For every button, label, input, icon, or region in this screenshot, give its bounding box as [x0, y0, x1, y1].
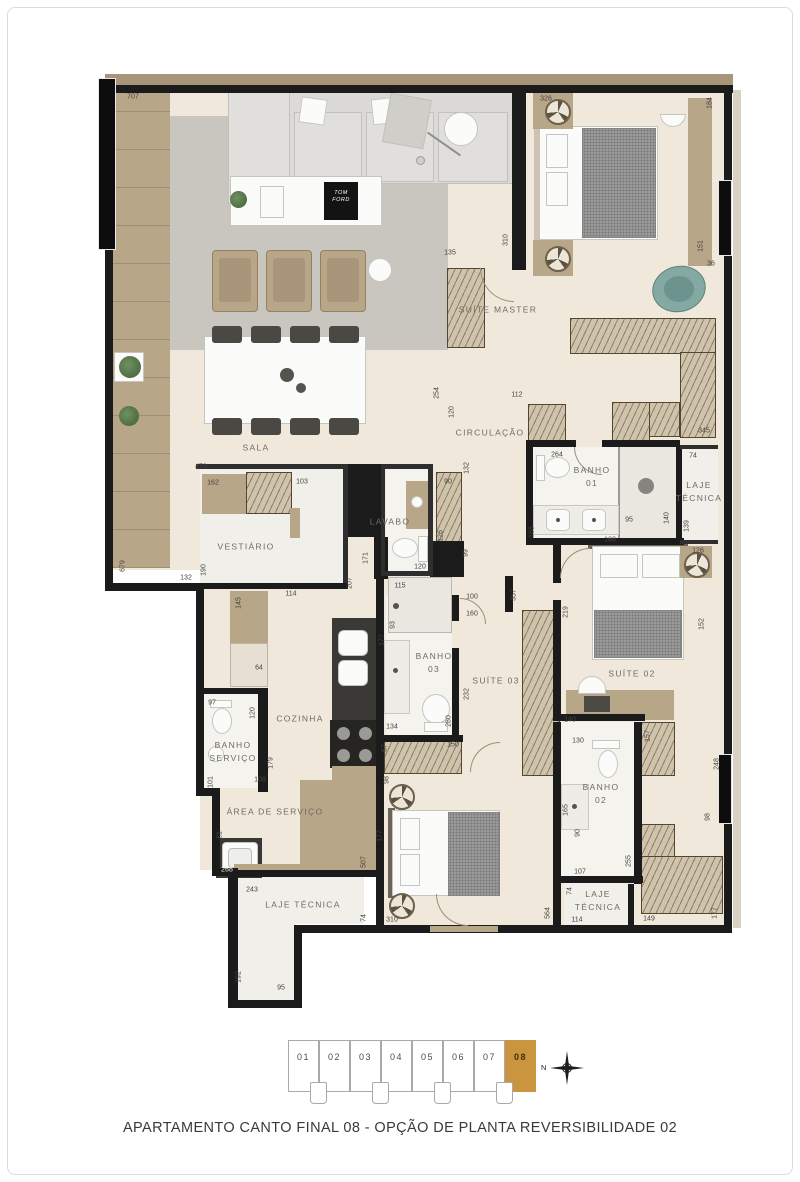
- ceiling-fan-icon: [389, 784, 415, 810]
- wall-segment: [553, 876, 561, 933]
- wall-segment: [428, 464, 433, 576]
- plant: [119, 356, 141, 378]
- room-label: COZINHA: [276, 712, 323, 725]
- kitchen-sink: [338, 660, 368, 686]
- room-label: LAJE TÉCNICA: [676, 479, 722, 505]
- dining-chair: [290, 418, 320, 435]
- room-label: LAJE TÉCNICA: [265, 898, 340, 911]
- dimension-label: 326: [540, 96, 552, 103]
- dimension-label: 115: [394, 583, 405, 590]
- wall-segment: [196, 464, 348, 469]
- dimension-label: 139: [684, 520, 691, 532]
- wall-segment: [381, 571, 433, 576]
- sink-drain: [572, 804, 577, 809]
- dimension-label: 114: [285, 591, 296, 598]
- room-label: BANHO 02: [583, 781, 620, 807]
- bed-pillow: [400, 854, 420, 886]
- bed-blanket: [582, 128, 656, 238]
- armchair-seat: [273, 258, 305, 302]
- dimension-label: 99: [463, 549, 470, 557]
- tray: [260, 186, 284, 218]
- dimension-label: 120: [250, 707, 257, 719]
- closet-return: [290, 508, 300, 538]
- room-label: SALA: [243, 441, 270, 454]
- wall-segment: [526, 440, 576, 447]
- dimension-label: 177: [712, 907, 719, 919]
- dimension-label: 357: [511, 589, 518, 601]
- dimension-label: 95: [277, 985, 285, 992]
- dimension-label: 255: [626, 855, 633, 867]
- room-label: BANHO 01: [574, 464, 611, 490]
- room-label: SUÍTE 03: [472, 674, 519, 687]
- bed-blanket: [594, 610, 682, 658]
- kitchen-sink: [338, 630, 368, 656]
- room-label: BANHO 03: [416, 650, 453, 676]
- dimension-label: 243: [246, 887, 258, 894]
- room-label: SUÍTE MASTER: [459, 303, 537, 316]
- floor-plan-page: TOM FORD: [0, 0, 800, 1182]
- dimension-label: 254: [434, 387, 441, 399]
- closet-hatched: [641, 856, 723, 914]
- keyplan-core: [372, 1082, 389, 1104]
- dimension-label: 95: [625, 517, 633, 524]
- dining-chair: [212, 326, 242, 343]
- ceiling-fan-icon: [545, 99, 571, 125]
- dimension-label: 219: [563, 606, 570, 618]
- wall-segment: [203, 583, 348, 589]
- dimension-label: 107: [574, 869, 586, 876]
- dimension-label: 120: [449, 406, 456, 418]
- dimension-label: 93: [390, 621, 397, 629]
- wall-segment: [228, 1000, 302, 1008]
- dimension-label: 140: [564, 717, 576, 724]
- dimension-label: 268: [221, 867, 233, 874]
- dimension-label: 81: [217, 831, 224, 839]
- bed-blanket: [448, 812, 500, 896]
- dimension-label: 64: [255, 665, 263, 672]
- dimension-label: 74: [567, 887, 574, 895]
- stove-burner: [337, 727, 350, 740]
- room-label: ÁREA DE SERVIÇO: [227, 805, 324, 818]
- toilet-bowl: [392, 538, 418, 558]
- floor-lamp-shade: [444, 112, 478, 146]
- wall-segment: [105, 583, 203, 591]
- dimension-label: 679: [120, 560, 127, 572]
- floor-lamp-base: [416, 156, 425, 165]
- armchair: [382, 93, 432, 150]
- dimension-label: 207: [347, 577, 354, 589]
- toilet-bowl: [545, 457, 570, 478]
- dimension-label: 157: [645, 730, 652, 742]
- dimension-label: 100: [466, 594, 478, 601]
- dimension-label: 74: [361, 914, 368, 922]
- dimension-label: 130: [572, 738, 584, 745]
- dimension-label: 103: [296, 479, 308, 486]
- sink-drain: [592, 518, 596, 522]
- compass-icon: [550, 1051, 584, 1085]
- dining-chair: [212, 418, 242, 435]
- bed-pillow: [546, 172, 568, 206]
- plan-caption: APARTAMENTO CANTO FINAL 08 - OPÇÃO DE PL…: [0, 1120, 800, 1136]
- dimension-label: 165: [529, 526, 536, 538]
- dining-chair: [290, 326, 320, 343]
- master-bed-headboard: [534, 122, 540, 242]
- dimension-label: 132: [464, 462, 471, 474]
- wall-segment: [553, 600, 561, 718]
- keyplan-core: [496, 1082, 513, 1104]
- dimension-label: 90: [575, 829, 582, 837]
- room-label: LAVABO: [370, 515, 411, 528]
- dimension-label: 310: [503, 234, 510, 246]
- dimension-label: 190: [201, 564, 208, 576]
- compass-north-label: N: [541, 1063, 546, 1072]
- shower-head: [393, 603, 399, 609]
- armchair-seat: [327, 258, 359, 302]
- dimension-label: 707: [127, 94, 139, 101]
- wall-segment: [228, 870, 380, 877]
- sink-drain: [393, 668, 398, 673]
- dimension-label: 132: [180, 575, 192, 582]
- toilet-bowl: [598, 750, 618, 778]
- dimension-label: 151: [698, 240, 705, 252]
- toilet-tank: [592, 740, 620, 749]
- dimension-label: 162: [207, 480, 219, 487]
- dimension-label: 184: [707, 97, 714, 109]
- bed-pillow: [600, 554, 638, 578]
- dimension-label: 232: [464, 688, 471, 700]
- dimension-label: 280: [446, 715, 453, 727]
- dimension-label: 507: [361, 856, 368, 868]
- toilet-tank: [418, 536, 428, 562]
- wall-segment: [452, 648, 459, 742]
- keyplan-core: [434, 1082, 451, 1104]
- wall-segment: [430, 541, 464, 577]
- dining-chair: [329, 326, 359, 343]
- shower-drain: [638, 478, 654, 494]
- laptop: [584, 696, 610, 712]
- dimension-label: 57: [382, 744, 389, 752]
- dimension-label: 177: [379, 634, 386, 646]
- dimension-label: 160: [466, 611, 478, 618]
- dimension-label: 98: [384, 776, 391, 784]
- sofa-pillow: [298, 96, 327, 125]
- dimension-label: 248: [714, 758, 721, 770]
- tom-ford-book: TOM FORD: [324, 182, 358, 220]
- cabinet: [528, 404, 566, 442]
- coffee-table: [230, 176, 382, 226]
- dimension-label: 108: [254, 777, 266, 784]
- dimension-label: 135: [444, 250, 456, 257]
- keyplan-core: [310, 1082, 327, 1104]
- dining-chair: [251, 326, 281, 343]
- wall-segment: [602, 440, 680, 447]
- dimension-label: 134: [386, 724, 398, 731]
- sink-drain: [556, 518, 560, 522]
- accent-chair-cushion: [664, 276, 694, 302]
- plant: [119, 406, 139, 426]
- room-label: SUÍTE 02: [608, 667, 655, 680]
- dimension-label: 36: [707, 261, 715, 268]
- room-label: VESTIÁRIO: [217, 540, 274, 553]
- dining-chair: [329, 418, 359, 435]
- dimension-label: 149: [643, 916, 655, 923]
- stove-burner: [337, 749, 350, 762]
- wall-segment: [680, 445, 718, 449]
- dimension-label: 74: [689, 453, 697, 460]
- wall-segment: [105, 85, 733, 93]
- ceiling-fan-icon: [389, 893, 415, 919]
- dimension-label: 140: [664, 512, 671, 524]
- cabinet: [612, 402, 650, 442]
- wall-segment: [553, 722, 561, 882]
- dimension-label: 165: [563, 804, 570, 816]
- dimension-label: 150: [447, 742, 459, 749]
- room-label: LAJE TÉCNICA: [575, 888, 621, 914]
- exterior-trim-top: [105, 74, 733, 85]
- toilet-tank: [424, 722, 448, 732]
- dimension-label: 192: [236, 971, 243, 983]
- plant: [230, 191, 247, 208]
- wall-segment: [343, 464, 348, 588]
- bed-pillow: [400, 818, 420, 850]
- dimension-label: 112: [511, 392, 522, 399]
- wall-segment: [628, 884, 634, 933]
- dimension-label: 179: [268, 757, 275, 769]
- dimension-label: 473: [195, 464, 207, 471]
- dimension-label: 97: [208, 700, 216, 707]
- wall-segment: [512, 88, 526, 270]
- wall-segment: [381, 464, 433, 469]
- dimension-label: 126: [692, 548, 704, 555]
- table-bowl: [296, 383, 306, 393]
- room-label: CIRCULAÇÃO: [456, 426, 525, 439]
- dimension-label: 120: [414, 564, 426, 571]
- toilet-bowl: [212, 708, 232, 734]
- dimension-label: 126: [438, 530, 445, 542]
- dimension-label: 171: [363, 552, 370, 564]
- wall-segment: [452, 595, 459, 621]
- stove-burner: [359, 749, 372, 762]
- dimension-label: 345: [698, 428, 710, 435]
- exterior-trim-right: [733, 90, 741, 928]
- table-bowl: [280, 368, 294, 382]
- ceiling-fan-icon: [545, 246, 571, 272]
- dimension-label: 101: [208, 776, 215, 788]
- stove: [330, 720, 378, 768]
- laje-tecnica-bottom-left-floor: [236, 874, 296, 1002]
- vestiario-closet-hatched: [246, 472, 292, 514]
- keyplan: 0102030405060708: [288, 1040, 536, 1100]
- dimension-label: 114: [571, 917, 582, 924]
- dimension-label: 90: [444, 479, 452, 486]
- dimension-label: 168: [604, 537, 616, 544]
- dimension-label: 98: [705, 813, 712, 821]
- wood-floor-strip: [112, 92, 170, 568]
- armchair-seat: [219, 258, 251, 302]
- dimension-label: 177: [377, 830, 384, 842]
- dimension-label: 264: [551, 452, 563, 459]
- window: [98, 78, 116, 250]
- dining-chair: [251, 418, 281, 435]
- window: [718, 180, 732, 256]
- dimension-label: 564: [545, 907, 552, 919]
- bed-pillow: [642, 554, 680, 578]
- vanity-counter: [384, 640, 410, 714]
- wall-segment: [294, 925, 386, 933]
- bed-pillow: [546, 134, 568, 168]
- master-closet: [570, 318, 716, 354]
- master-closet: [680, 352, 716, 438]
- dimension-label: 145: [236, 597, 243, 609]
- wall-segment: [553, 876, 643, 883]
- side-table: [368, 258, 392, 282]
- entry-door-sill: [430, 926, 498, 932]
- dimension-label: 152: [699, 618, 706, 630]
- room-label: BANHO SERVIÇO: [209, 739, 256, 765]
- dimension-label: 310: [386, 917, 398, 924]
- wall-segment: [228, 868, 238, 1008]
- wall-segment: [634, 722, 642, 884]
- ceiling-fan-icon: [684, 552, 710, 578]
- wall-segment: [294, 930, 302, 1008]
- wall-segment: [680, 540, 718, 544]
- toilet-tank: [536, 455, 545, 481]
- stove-burner: [359, 727, 372, 740]
- sink: [411, 496, 423, 508]
